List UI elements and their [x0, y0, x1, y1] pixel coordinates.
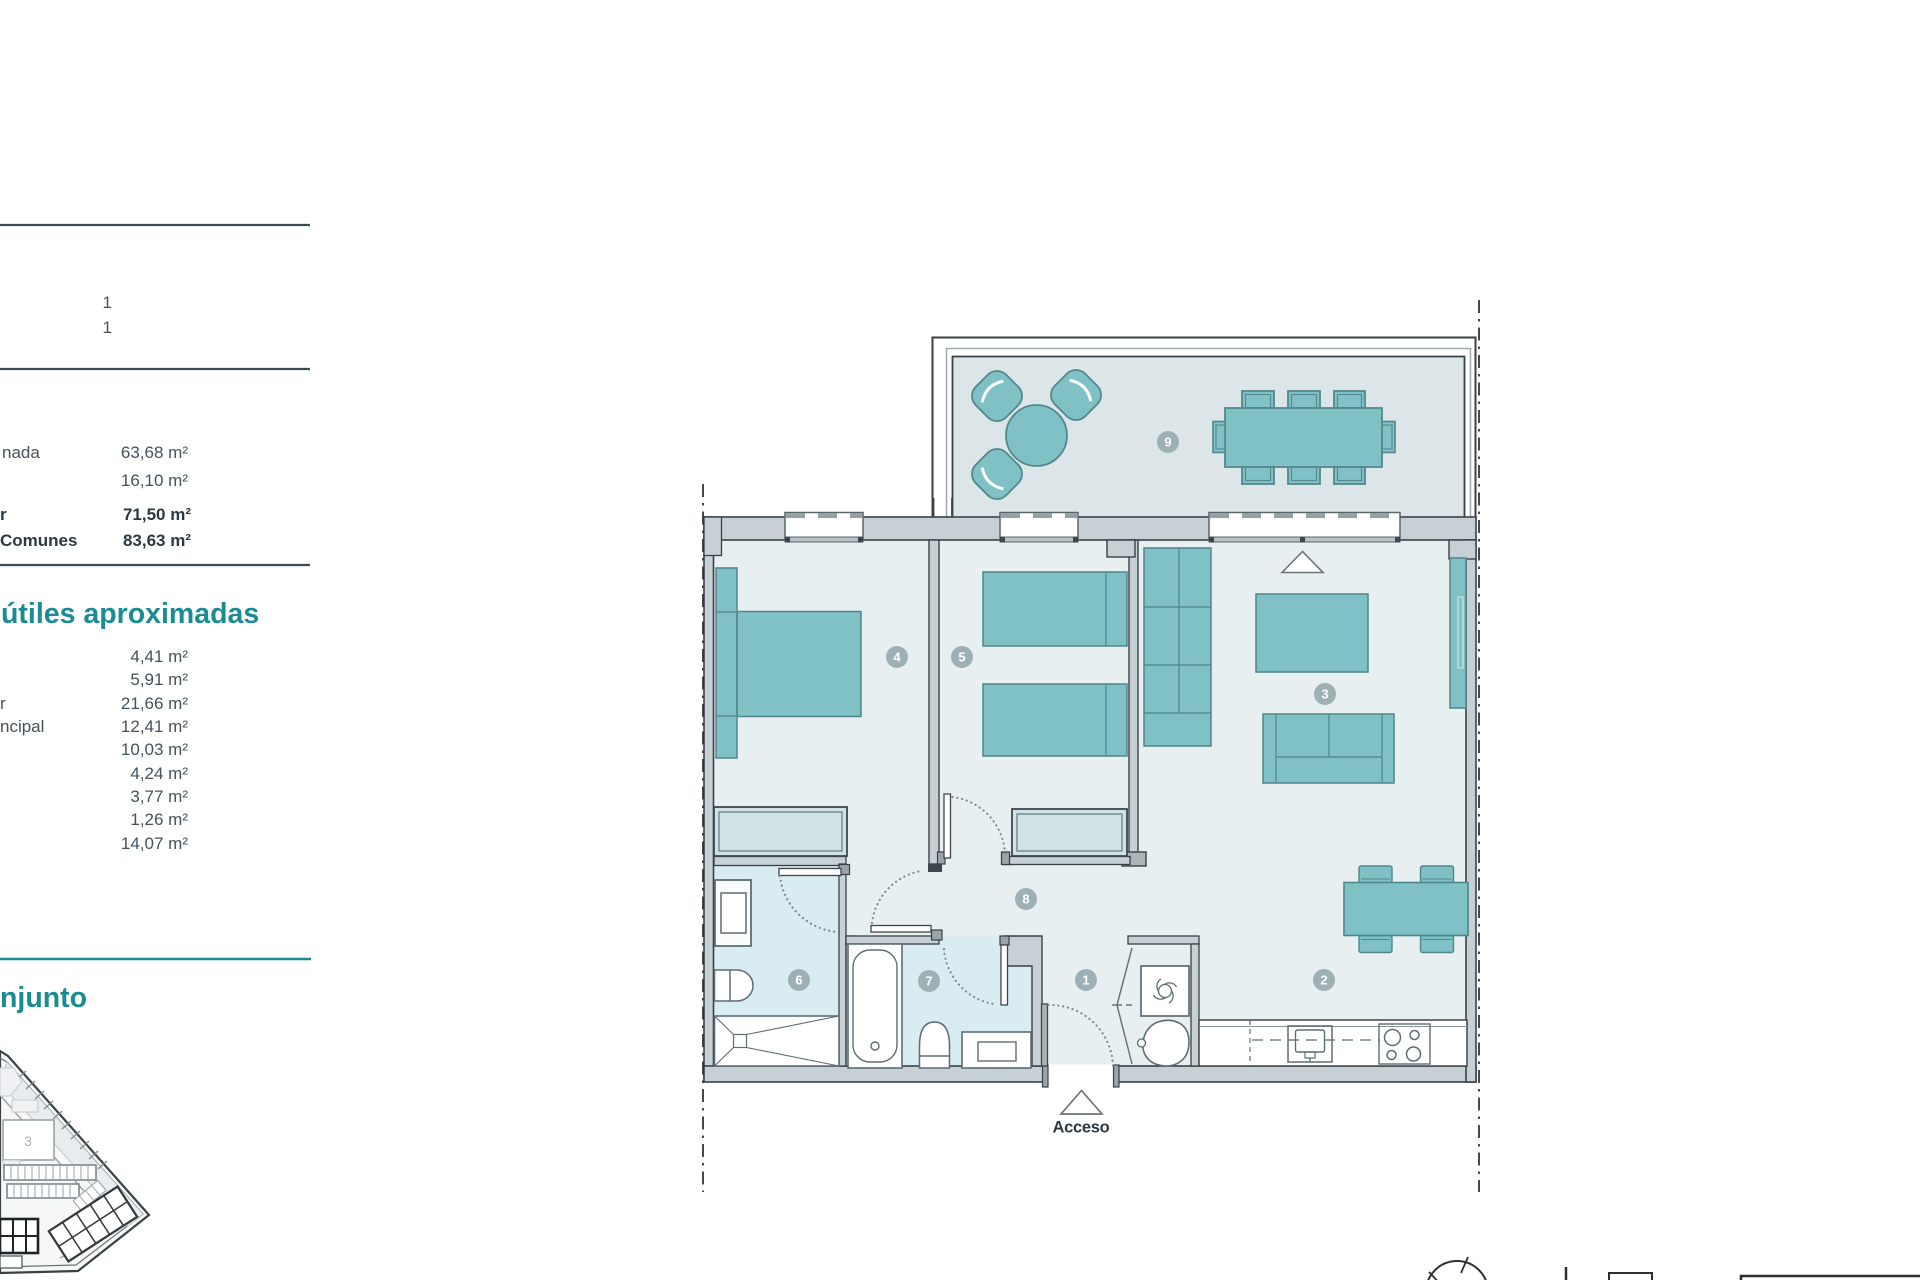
svg-text:21,66 m²: 21,66 m² [121, 694, 188, 713]
svg-text:njunto: njunto [0, 982, 87, 1014]
svg-text:1: 1 [103, 293, 112, 312]
svg-text:63,68 m²: 63,68 m² [121, 443, 188, 462]
svg-text:4: 4 [893, 650, 901, 665]
svg-text:12,41 m²: 12,41 m² [121, 717, 188, 736]
svg-text:16,10 m²: 16,10 m² [121, 471, 188, 490]
svg-text:Acceso: Acceso [1053, 1119, 1110, 1137]
svg-text:útiles aproximadas: útiles aproximadas [1, 598, 259, 630]
svg-text:83,63 m²: 83,63 m² [123, 531, 191, 550]
svg-text:1: 1 [1082, 973, 1089, 988]
svg-text:nada: nada [2, 443, 40, 462]
svg-text:6: 6 [795, 973, 802, 988]
svg-text:1,26 m²: 1,26 m² [130, 810, 188, 829]
svg-text:7: 7 [925, 974, 932, 989]
svg-text:1: 1 [103, 318, 112, 337]
svg-text:5: 5 [958, 650, 965, 665]
svg-text:3: 3 [1321, 687, 1328, 702]
svg-text:2: 2 [1320, 973, 1327, 988]
svg-text:3,77 m²: 3,77 m² [130, 787, 188, 806]
svg-text:r: r [0, 694, 6, 713]
svg-text:ncipal: ncipal [0, 717, 44, 736]
svg-text:5,91 m²: 5,91 m² [130, 670, 188, 689]
svg-text:9: 9 [1164, 435, 1171, 450]
svg-text:r: r [0, 505, 7, 524]
svg-text:71,50 m²: 71,50 m² [123, 505, 191, 524]
svg-text:10,03 m²: 10,03 m² [121, 740, 188, 759]
svg-text:Comunes: Comunes [0, 531, 77, 550]
svg-text:4,24 m²: 4,24 m² [130, 764, 188, 783]
svg-text:14,07 m²: 14,07 m² [121, 834, 188, 853]
svg-text:3: 3 [24, 1133, 32, 1149]
svg-text:8: 8 [1022, 892, 1029, 907]
svg-text:4,41 m²: 4,41 m² [130, 647, 188, 666]
